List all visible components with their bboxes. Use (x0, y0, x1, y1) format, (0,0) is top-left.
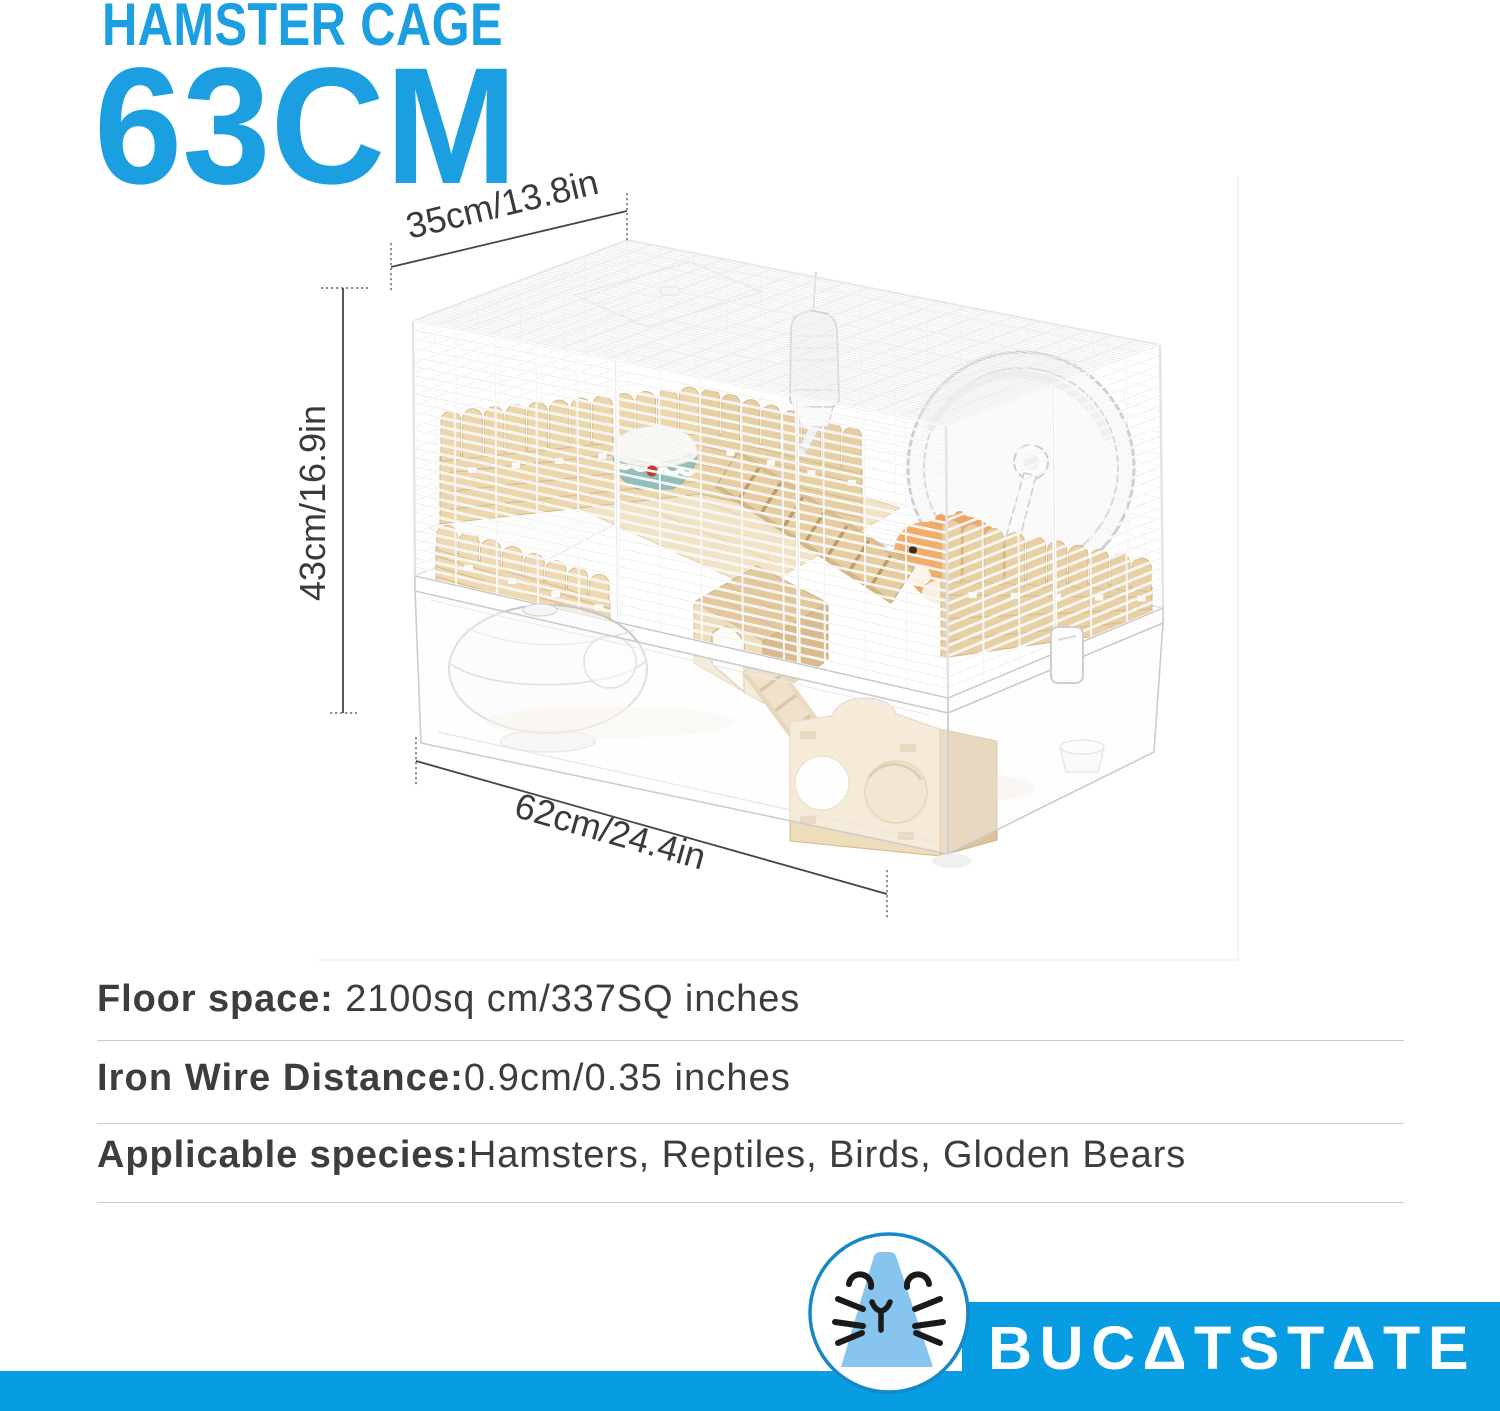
svg-text:43cm/16.9in: 43cm/16.9in (292, 405, 333, 601)
svg-text:62cm/24.4in: 62cm/24.4in (510, 785, 710, 878)
svg-text:35cm/13.8in: 35cm/13.8in (402, 161, 602, 247)
